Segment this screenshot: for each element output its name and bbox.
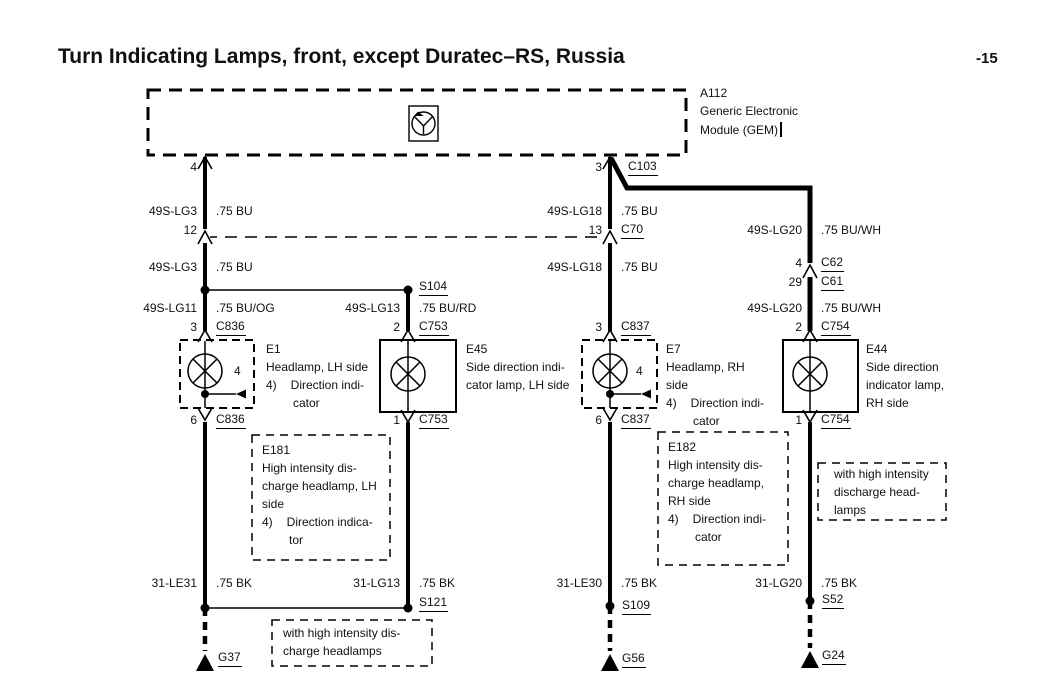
gem-desc-text: Module (GEM) — [700, 123, 778, 137]
component-desc: RH side — [866, 394, 944, 412]
ground-label: G37 — [218, 650, 242, 664]
ground-text: G24 — [822, 648, 846, 665]
circuit-label: 49S-LG3 — [117, 260, 197, 274]
wire-spec-label: .75 BU — [621, 204, 658, 218]
connector-text: C754 — [821, 319, 851, 336]
note-text: Direction indi- — [691, 396, 764, 410]
note-text: Direction indica- — [287, 515, 373, 529]
pin-number: 4 — [117, 160, 197, 174]
connector-label: C754 — [821, 319, 851, 333]
wire-spec-label: .75 BU — [216, 204, 253, 218]
connector-text: C753 — [419, 412, 449, 429]
gem-desc-line2: Module (GEM) — [700, 122, 782, 137]
wire-spec-label: .75 BU/WH — [821, 301, 881, 315]
e45-description: E45 Side direction indi- cator lamp, LH … — [466, 340, 569, 394]
wire-spec-label: .75 BK — [216, 576, 252, 590]
component-desc: Headlamp, RH — [666, 358, 764, 376]
note-text: discharge head- — [834, 483, 929, 501]
note-text: Direction indi- — [693, 512, 766, 526]
note-text: charge headlamps — [283, 642, 400, 660]
component-note: 4)Direction indi- — [668, 510, 766, 528]
module-icon — [409, 106, 438, 141]
splice-label: S109 — [622, 598, 651, 612]
e44-box — [783, 340, 858, 412]
component-id: E182 — [668, 438, 766, 456]
component-id: E1 — [266, 340, 368, 358]
component-desc: High intensity dis- — [262, 459, 377, 477]
wiring-diagram-page: Turn Indicating Lamps, front, except Dur… — [0, 0, 1040, 676]
note-number: 4) — [668, 512, 679, 526]
component-desc: side — [262, 495, 377, 513]
splice-label: S104 — [419, 279, 448, 293]
connector-text: C62 — [821, 255, 844, 272]
note-text: tor — [262, 531, 377, 549]
component-id: E45 — [466, 340, 569, 358]
circuit-label: 49S-LG20 — [722, 301, 802, 315]
note-number: 4) — [666, 396, 677, 410]
pin-number: 13 — [522, 223, 602, 237]
pin-number: 6 — [117, 413, 197, 427]
component-desc: Side direction indi- — [466, 358, 569, 376]
text-cursor — [780, 122, 782, 137]
connector-label: C103 — [628, 159, 658, 173]
connector-text: C753 — [419, 319, 449, 336]
splice-label: S52 — [822, 592, 844, 606]
wiring-linework — [0, 0, 1040, 676]
note-text: with high intensity dis- — [283, 624, 400, 642]
connector-text: C103 — [628, 159, 658, 176]
connector-label: C754 — [821, 412, 851, 426]
gem-id: A112 — [700, 86, 727, 100]
note-text: Direction indi- — [291, 378, 364, 392]
circuit-label: 31-LG20 — [722, 576, 802, 590]
e1-box — [180, 340, 254, 408]
note-number: 4) — [262, 515, 273, 529]
connector-label: C70 — [621, 222, 644, 236]
connector-text: C754 — [821, 412, 851, 429]
note-number: 4) — [266, 378, 277, 392]
pin-number: 1 — [320, 413, 400, 427]
e44-description: E44 Side direction indicator lamp, RH si… — [866, 340, 944, 412]
component-note: 4)Direction indica- — [262, 513, 377, 531]
pin-number: 12 — [117, 223, 197, 237]
component-desc: Headlamp, LH side — [266, 358, 368, 376]
circuit-label: 49S-LG18 — [522, 260, 602, 274]
pin-number: 2 — [320, 320, 400, 334]
ground-text: G37 — [218, 650, 242, 667]
circuit-label: 49S-LG18 — [522, 204, 602, 218]
connector-text: C70 — [621, 222, 644, 239]
splice-text: S109 — [622, 598, 651, 615]
hid-note-right: with high intensity discharge head- lamp… — [834, 465, 929, 519]
component-desc: High intensity dis- — [668, 456, 766, 474]
component-note: 4)Direction indi- — [666, 394, 764, 412]
ground-text: G56 — [622, 651, 646, 668]
wire-spec-label: .75 BU/RD — [419, 301, 476, 315]
pin-number: 3 — [522, 160, 602, 174]
component-desc: cator lamp, LH side — [466, 376, 569, 394]
ground-label: G56 — [622, 651, 646, 665]
component-desc: charge headlamp, — [668, 474, 766, 492]
component-desc: Side direction — [866, 358, 944, 376]
ground-label: G24 — [822, 648, 846, 662]
note-text: cator — [266, 394, 368, 412]
component-id: E44 — [866, 340, 944, 358]
e1-description: E1 Headlamp, LH side 4)Direction indi- c… — [266, 340, 368, 412]
component-id: E7 — [666, 340, 764, 358]
component-desc: charge headlamp, LH — [262, 477, 377, 495]
wire-spec-label: .75 BK — [621, 576, 657, 590]
pin-number: 3 — [522, 320, 602, 334]
pin-number: 29 — [722, 275, 802, 289]
e182-description: E182 High intensity dis- charge headlamp… — [668, 438, 766, 546]
connector-label: C62 — [821, 255, 844, 269]
component-desc: side — [666, 376, 764, 394]
pin-number: 4 — [722, 256, 802, 270]
circuit-label: 49S-LG11 — [117, 301, 197, 315]
pin-number: 6 — [522, 413, 602, 427]
wire-spec-label: .75 BK — [821, 576, 857, 590]
connector-text: C836 — [216, 412, 246, 429]
circuit-label: 31-LE31 — [117, 576, 197, 590]
connector-label: C836 — [216, 319, 246, 333]
pin-number: 2 — [722, 320, 802, 334]
wire-spec-label: .75 BK — [419, 576, 455, 590]
circuit-label: 49S-LG13 — [320, 301, 400, 315]
splice-text: S104 — [419, 279, 448, 296]
connector-text: C61 — [821, 274, 844, 291]
circuit-label: 49S-LG3 — [117, 204, 197, 218]
note-text: lamps — [834, 501, 929, 519]
connector-label: C753 — [419, 319, 449, 333]
component-desc: RH side — [668, 492, 766, 510]
e181-description: E181 High intensity dis- charge headlamp… — [262, 441, 377, 549]
splice-text: S121 — [419, 595, 448, 612]
page-title: Turn Indicating Lamps, front, except Dur… — [58, 45, 625, 69]
connector-label: C837 — [621, 319, 651, 333]
wire-spec-label: .75 BU — [216, 260, 253, 274]
note-text: with high intensity — [834, 465, 929, 483]
note-text: cator — [668, 528, 766, 546]
circuit-label: 31-LE30 — [522, 576, 602, 590]
connector-text: C837 — [621, 319, 651, 336]
component-desc: indicator lamp, — [866, 376, 944, 394]
circuit-label: 31-LG13 — [320, 576, 400, 590]
gem-module-box — [148, 90, 686, 155]
wire-spec-label: .75 BU/OG — [216, 301, 275, 315]
component-id: E181 — [262, 441, 377, 459]
wire-spec-label: .75 BU/WH — [821, 223, 881, 237]
page-number: -15 — [976, 50, 998, 67]
internal-pin-number: 4 — [234, 364, 241, 378]
circuit-label: 49S-LG20 — [722, 223, 802, 237]
connector-text: C836 — [216, 319, 246, 336]
connector-label: C837 — [621, 412, 651, 426]
component-note: 4)Direction indi- — [266, 376, 368, 394]
connector-label: C753 — [419, 412, 449, 426]
splice-label: S121 — [419, 595, 448, 609]
pin-number: 3 — [117, 320, 197, 334]
connector-label: C836 — [216, 412, 246, 426]
splice-text: S52 — [822, 592, 844, 609]
hid-note-bottom: with high intensity dis- charge headlamp… — [283, 624, 400, 660]
pin-number: 1 — [722, 413, 802, 427]
wire-spec-label: .75 BU — [621, 260, 658, 274]
connector-label: C61 — [821, 274, 844, 288]
internal-pin-number: 4 — [636, 364, 643, 378]
connector-text: C837 — [621, 412, 651, 429]
gem-desc-line1: Generic Electronic — [700, 104, 798, 118]
